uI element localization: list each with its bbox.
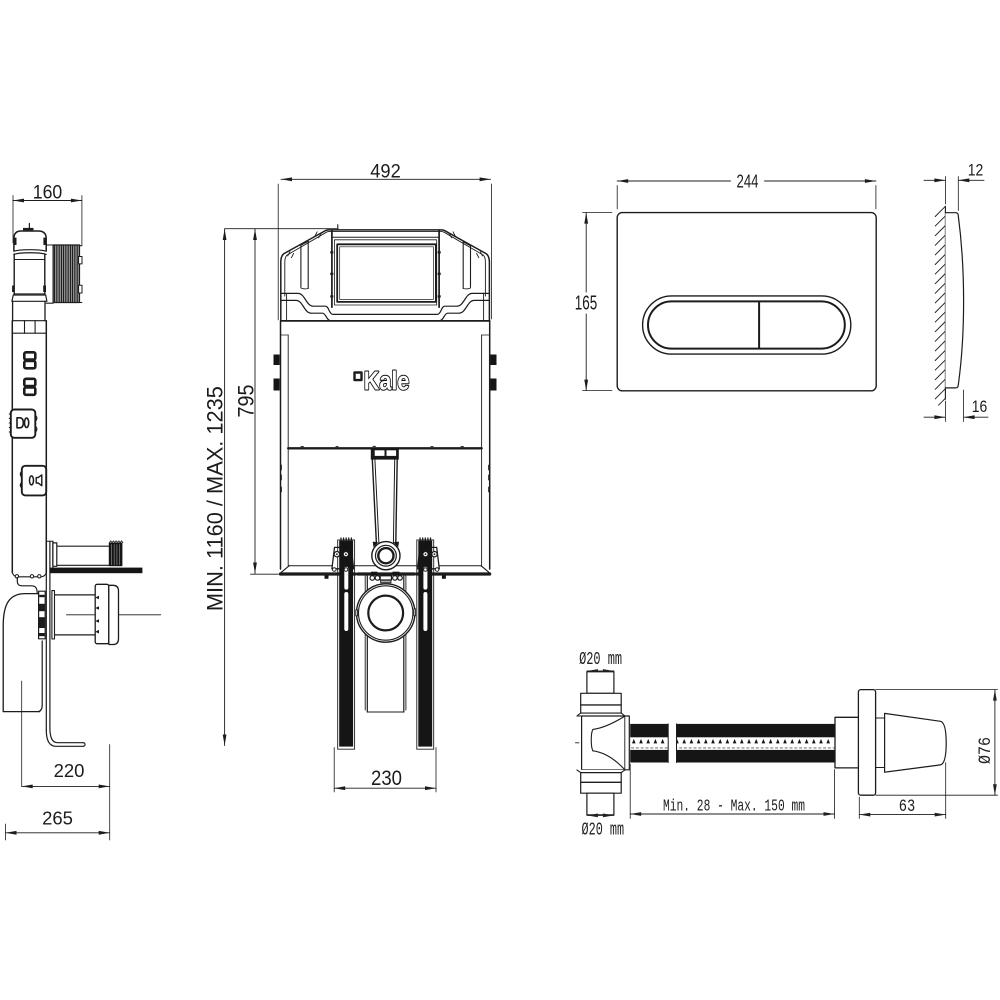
svg-text:Ø20 mm: Ø20 mm — [582, 821, 625, 841]
svg-text:Kale: Kale — [364, 366, 410, 396]
svg-text:63: 63 — [899, 797, 916, 817]
svg-text:Ø76: Ø76 — [976, 737, 996, 764]
svg-text:165: 165 — [575, 293, 598, 315]
svg-text:244: 244 — [737, 170, 759, 191]
svg-text:16: 16 — [972, 398, 988, 416]
svg-text:265: 265 — [42, 808, 73, 829]
svg-text:MIN. 1160 / MAX. 1235: MIN. 1160 / MAX. 1235 — [203, 386, 228, 611]
svg-text:220: 220 — [54, 760, 85, 781]
svg-text:230: 230 — [371, 767, 402, 790]
svg-text:Ø20 mm: Ø20 mm — [579, 650, 622, 670]
svg-text:12: 12 — [968, 162, 984, 180]
